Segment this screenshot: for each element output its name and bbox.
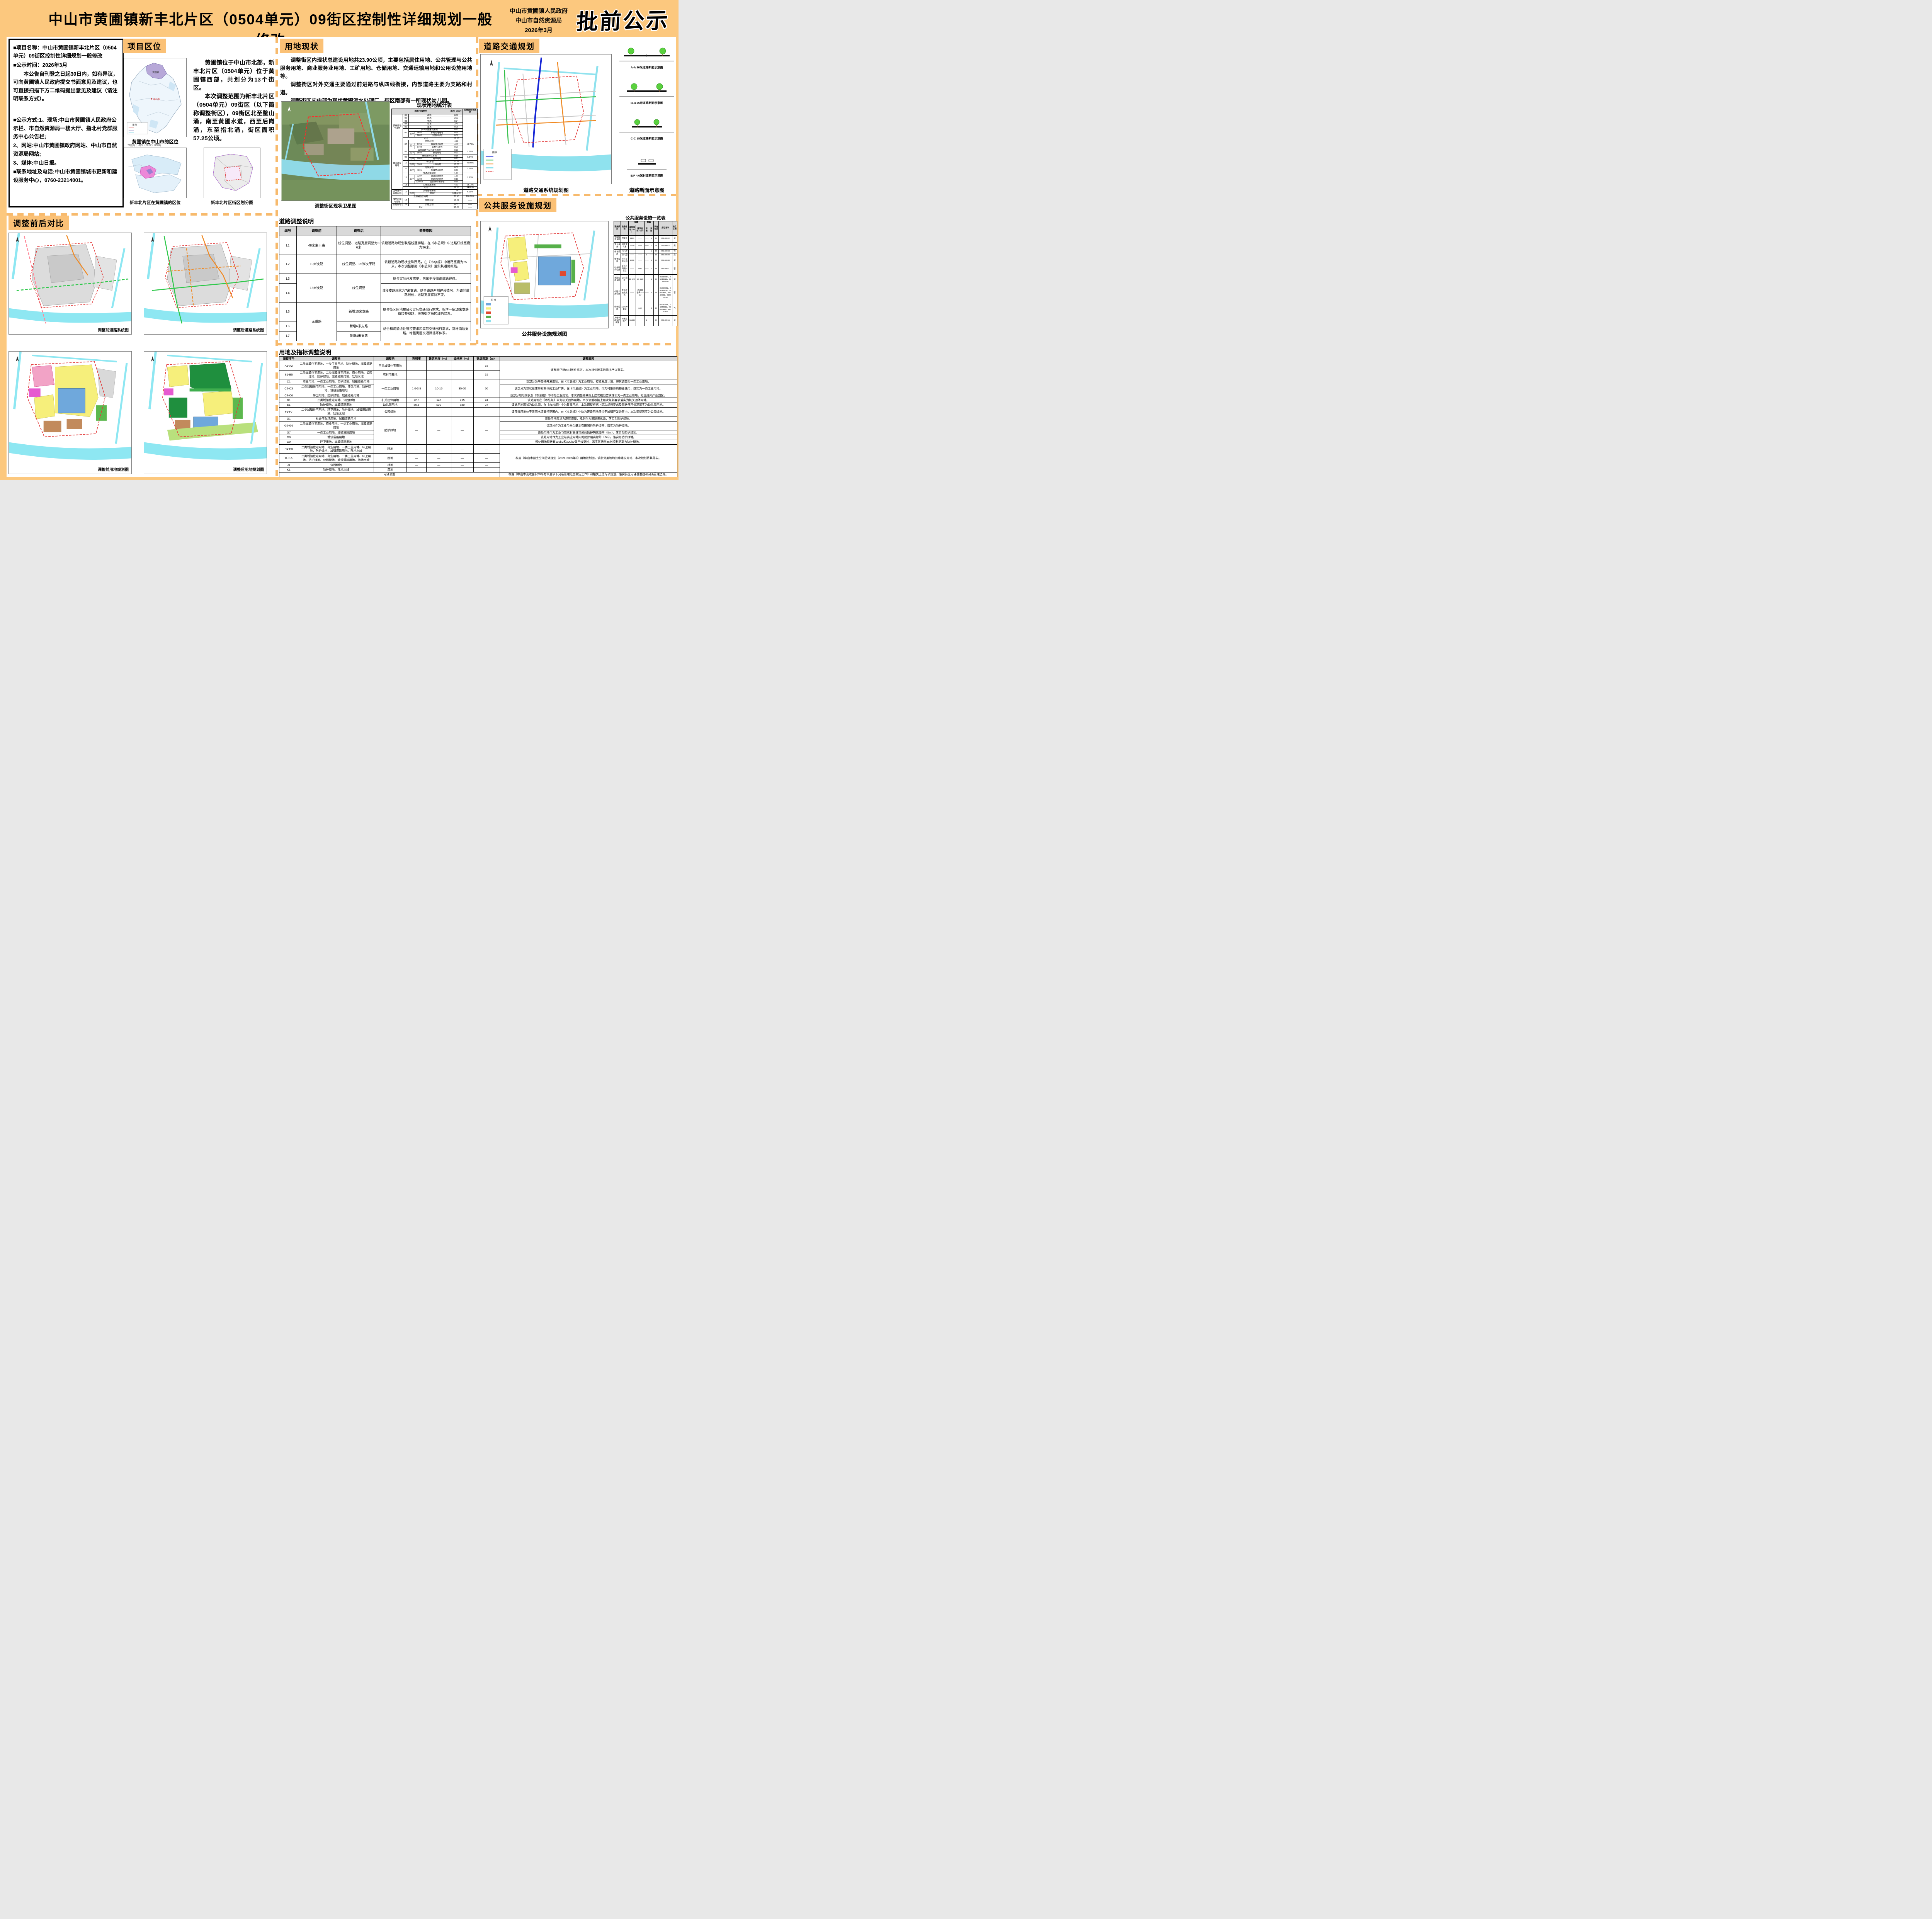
caption-satellite: 调整街区现状卫星图 (281, 202, 390, 209)
city-location-map: 黄圃镇 中山市 图 例 (124, 58, 187, 137)
map-legend: 图 例 (127, 122, 148, 134)
cross-section-ef: E/F 4/6米村道断面示意图 (617, 151, 676, 178)
publicity-time: ■公示时间：2026年3月 (13, 61, 119, 69)
facility-marker (560, 271, 566, 276)
divider-horizontal-right (476, 194, 676, 196)
pre-approval-stamp: 批前公示 (576, 3, 670, 36)
location-text: 黄圃镇位于中山市北部，新丰北片区（0504单元）位于黄圃镇西部，共划分为13个街… (193, 59, 274, 143)
map-legend: 图 例 (484, 297, 509, 324)
landuse-adjust-table: 调整序号调整前调整后容积率建筑密度（%）绿地率（%）建筑限高（m）调整原因 A1… (279, 356, 677, 477)
section-title-road-planning: 道路交通规划 (479, 39, 539, 53)
svg-text:图 例: 图 例 (491, 299, 496, 302)
caption-landuse-after: 调整后用地规划图 (232, 467, 265, 473)
svg-text:中山市: 中山市 (153, 98, 160, 101)
road-system-after-map: 调整后道路系统图 (144, 233, 267, 335)
facilities-table: 设施类别设施名称规模数量所在街区所在地块独立占地 用地面积（m²）建筑面积（m²… (614, 221, 677, 326)
adjustment-boundary (303, 114, 371, 176)
district-location-map (124, 148, 187, 198)
caption-road-after: 调整后道路系统图 (232, 328, 265, 333)
road-system-before-map: 调整前道路系统图 (9, 233, 132, 335)
road-system-planning-map: 图 例 (480, 54, 612, 184)
cross-section-bb: B-B 25米道路断面示意图 (617, 79, 676, 105)
road-adjust-title: 道路调整说明 (279, 217, 314, 225)
map-approval-number: 审图号：粤S（2022）060号 (128, 143, 162, 147)
svg-text:图 例: 图 例 (492, 151, 498, 154)
cross-section-aa: A-A 36米道路断面示意图 (617, 43, 676, 70)
caption-road-system-map: 道路交通系统规划图 (480, 186, 612, 194)
publisher-bureau: 中山市自然资源局 (501, 16, 577, 25)
caption-block-division: 新丰北片区街区划分图 (204, 199, 260, 206)
caption-facilities-map: 公共服务设施规划图 (480, 330, 609, 337)
landuse-status-text: 调整街区内现状总建设用地共23.90公顷，主要包括居住用地、公共管理与公共服务用… (280, 56, 472, 105)
landuse-adjust-title: 用地及指标调整说明 (279, 348, 331, 356)
notice-paragraph: 本公告自刊登之日起30日内，如有异议，可向黄圃镇人民政府提交书面意见及建议，也可… (13, 70, 119, 103)
caption-landuse-before: 调整前用地规划图 (97, 467, 130, 473)
caption-cross-sections: 道路断面示意图 (617, 186, 676, 194)
status-table: 用地用海类型面积（hm²）占建设用地比例 农林用地与湿地01耕地8.82—— 0… (391, 109, 478, 208)
public-facilities-map: 图 例 (480, 221, 609, 328)
facilities-table-title: 公共服务设施一览表 (614, 215, 677, 221)
caption-road-before: 调整前道路系统图 (97, 328, 130, 333)
publicity-method-1: ■公示方式:1、现场:中山市黄圃镇人民政府公示栏、市自然资源局一楼大厅、指北村党… (13, 116, 119, 141)
contact-info: ■联系地址及电话:中山市黄圃镇城市更新和建设服务中心，0760-23214001… (13, 168, 119, 184)
section-title-comparison: 调整前后对比 (9, 216, 69, 230)
svg-text:图 例: 图 例 (133, 124, 137, 126)
section-title-landuse-status: 用地现状 (280, 39, 323, 53)
status-table-title: 现状用地统计表 (391, 101, 477, 109)
project-name: ■项目名称：中山市黄圃镇新丰北片区（0504单元）09街区控制性详细规划一般修改 (13, 44, 119, 60)
section-title-public-facilities: 公共服务设施规划 (479, 198, 556, 212)
satellite-map (281, 101, 390, 201)
divider-horizontal-middle (276, 343, 676, 345)
publicity-method-3: 3、媒体:中山日报。 (13, 159, 119, 167)
publisher-block: 中山市黄圃镇人民政府 中山市自然资源局 2026年3月 (501, 6, 577, 35)
planning-notice-poster: 中山市黄圃镇新丰北片区（0504单元）09街区控制性详细规划一般修改 中山市黄圃… (0, 0, 679, 480)
notice-info-box: ■项目名称：中山市黄圃镇新丰北片区（0504单元）09街区控制性详细规划一般修改… (9, 39, 124, 207)
svg-text:黄圃镇: 黄圃镇 (152, 71, 159, 74)
map-legend: 图 例 (484, 149, 512, 180)
landuse-after-map: 调整后用地规划图 (144, 351, 267, 474)
publicity-method-2: 2、网站:中山市黄圃镇政府网站、中山市自然资源局网站; (13, 141, 119, 158)
block-division-map (204, 148, 260, 198)
landuse-before-map: 调整前用地规划图 (9, 351, 132, 474)
cross-section-cc: C-C 15米道路断面示意图 (617, 114, 676, 141)
section-title-location: 项目区位 (123, 39, 166, 53)
road-adjust-table: 编号调整前调整后调整原因 L148米主干路线位调整、道路宽度调整为36米该段道路… (279, 226, 471, 341)
divider-vertical-left (276, 37, 278, 477)
publish-date: 2026年3月 (501, 25, 577, 35)
publisher-gov: 中山市黄圃镇人民政府 (501, 6, 577, 16)
block-09-highlight (224, 166, 241, 180)
caption-district-location: 新丰北片区在黄圃镇的区位 (124, 199, 187, 206)
